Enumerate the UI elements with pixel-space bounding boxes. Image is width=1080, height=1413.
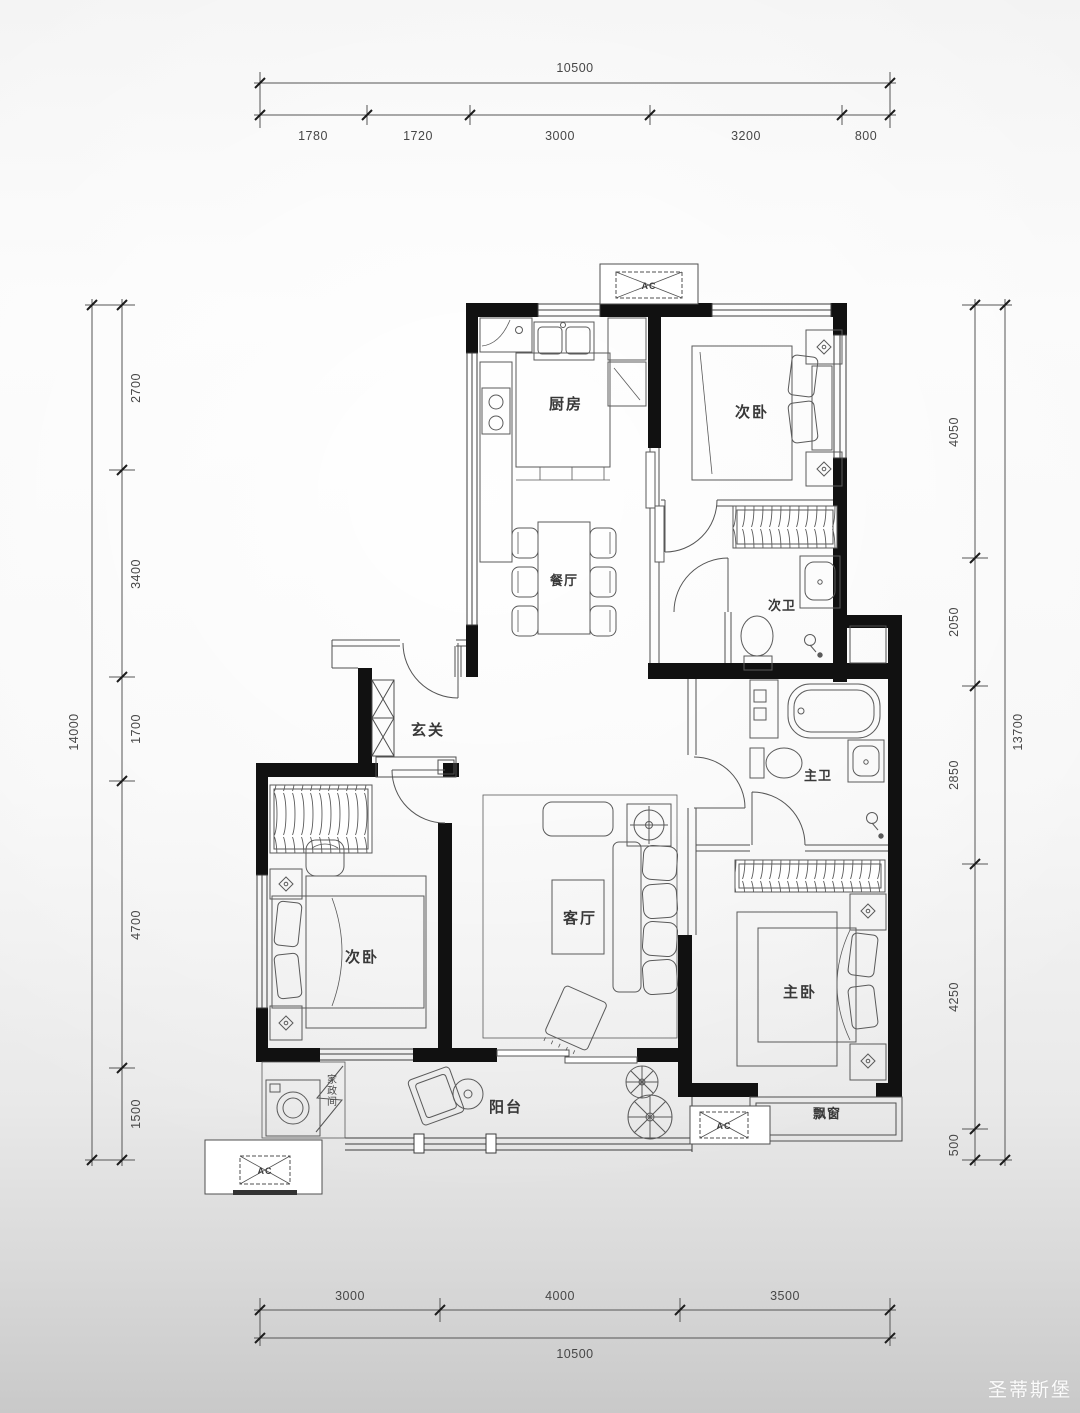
bedroom-left-label: 次卧 (345, 948, 379, 966)
ac-bottom-right-label: AC (717, 1121, 732, 1131)
dimension-left: 14000 2700 3400 1700 4700 1500 (67, 299, 143, 1166)
floorplan-svg: 厨房 次卧 次卫 餐厅 (0, 0, 1080, 1413)
dim-left-seg3: 4700 (129, 910, 143, 940)
dim-right-total: 13700 (1011, 713, 1025, 750)
bath-second-label: 次卫 (768, 598, 796, 613)
dim-bottom-seg1: 4000 (545, 1289, 575, 1303)
dim-top-total: 10500 (556, 61, 593, 75)
ac-bottom-left-label: AC (258, 1166, 273, 1176)
walls (256, 303, 902, 1097)
master-lobby-door (694, 757, 745, 808)
bedroom-master-furniture (735, 860, 886, 1080)
balcony-furniture (262, 1062, 672, 1139)
dim-right-seg2: 2850 (947, 760, 961, 790)
dim-left-total: 14000 (67, 713, 81, 750)
ac-top-label: AC (642, 281, 657, 291)
dining-label: 餐厅 (549, 573, 578, 588)
foyer-label: 玄关 (411, 721, 445, 739)
dim-top-seg1: 1720 (403, 129, 433, 143)
bedroom-left-furniture (270, 785, 426, 1040)
bath-master-label: 主卫 (804, 768, 832, 783)
dim-bottom-total: 10500 (556, 1347, 593, 1361)
bedroom-top-door (665, 500, 717, 552)
balcony-slider (497, 1050, 569, 1056)
laundry-label: 家政间 (325, 1073, 337, 1107)
bath-second-furniture (733, 506, 840, 670)
bath-master-furniture (750, 680, 884, 838)
balcony-label: 阳台 (489, 1098, 523, 1116)
dimension-bottom: 3000 4000 3500 10500 (254, 1289, 896, 1361)
dim-right-seg0: 4050 (947, 417, 961, 447)
watermark-text: 圣蒂斯堡 (988, 1375, 1072, 1402)
dim-top-seg0: 1780 (298, 129, 328, 143)
bedroom-master-label: 主卧 (783, 983, 817, 1001)
kitchen-label: 厨房 (549, 395, 583, 413)
plant-icons (626, 1066, 672, 1139)
dimension-top: 10500 1780 1720 3000 3200 800 (254, 61, 896, 143)
dim-left-seg1: 3400 (129, 559, 143, 589)
dim-bottom-seg0: 3000 (335, 1289, 365, 1303)
dim-right-seg1: 2050 (947, 607, 961, 637)
dim-top-seg3: 3200 (731, 129, 761, 143)
dim-right-seg3: 4250 (947, 982, 961, 1012)
bay-window-label: 飘窗 (813, 1106, 841, 1121)
dim-left-seg4: 1500 (129, 1099, 143, 1129)
dim-top-seg4: 800 (855, 129, 877, 143)
dim-left-seg0: 2700 (129, 373, 143, 403)
bedroom-top-label: 次卧 (735, 403, 769, 421)
floorplan-page: 厨房 次卧 次卫 餐厅 (0, 0, 1080, 1413)
doors (316, 500, 805, 1132)
master-bath-door (752, 792, 805, 845)
entry-door (403, 643, 458, 698)
bath-second-door (674, 558, 728, 612)
dim-top-seg2: 3000 (545, 129, 575, 143)
dim-right-seg4: 500 (947, 1134, 961, 1156)
dim-bottom-seg2: 3500 (770, 1289, 800, 1303)
living-label: 客厅 (562, 909, 597, 927)
dimension-right: 13700 4050 2050 2850 4250 500 (947, 299, 1025, 1166)
bedroom-left-door (392, 770, 445, 823)
dim-left-seg2: 1700 (129, 714, 143, 744)
kitchen-furniture (480, 318, 664, 562)
